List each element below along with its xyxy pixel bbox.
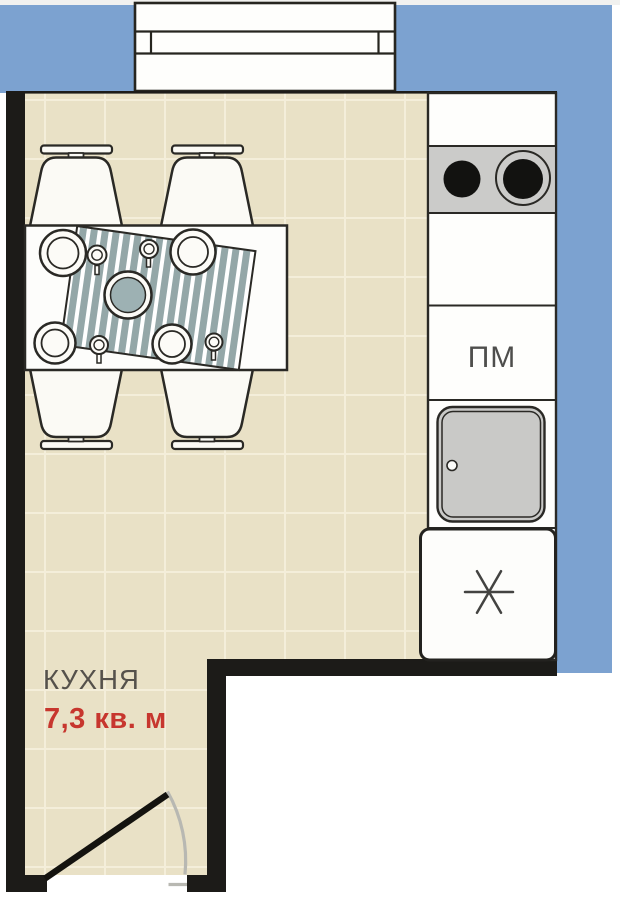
wall-bottom-left-block bbox=[6, 875, 47, 892]
fridge-icon bbox=[421, 529, 556, 660]
cup-handle bbox=[95, 266, 99, 275]
stove-burner-left bbox=[444, 161, 481, 198]
cup bbox=[206, 334, 223, 351]
wall-inner-horizontal bbox=[207, 659, 557, 676]
window-icon bbox=[135, 3, 395, 91]
cup-handle bbox=[97, 354, 101, 363]
cup bbox=[88, 246, 107, 265]
wall-inner-vertical bbox=[207, 659, 226, 875]
cup-handle bbox=[147, 258, 151, 267]
stove-icon bbox=[429, 147, 555, 212]
stove-burner-right bbox=[503, 159, 543, 199]
wall-bottom-right-foot bbox=[187, 875, 226, 892]
dining-table bbox=[25, 226, 287, 371]
dishwasher-label: ПМ bbox=[468, 341, 517, 374]
cup bbox=[90, 336, 108, 354]
kitchen-floor-plan: ПМ bbox=[0, 0, 620, 903]
cup-handle bbox=[212, 351, 216, 360]
room-area-label: 7,3 кв. м bbox=[44, 703, 167, 735]
floor-plan-canvas: ПМ bbox=[0, 0, 620, 903]
sink-icon bbox=[438, 407, 545, 522]
cup bbox=[140, 240, 158, 258]
wall-left bbox=[6, 93, 25, 875]
counter-column: ПМ bbox=[421, 93, 557, 660]
sink-drain bbox=[447, 461, 457, 471]
room-name-label: КУХНЯ bbox=[43, 664, 140, 695]
